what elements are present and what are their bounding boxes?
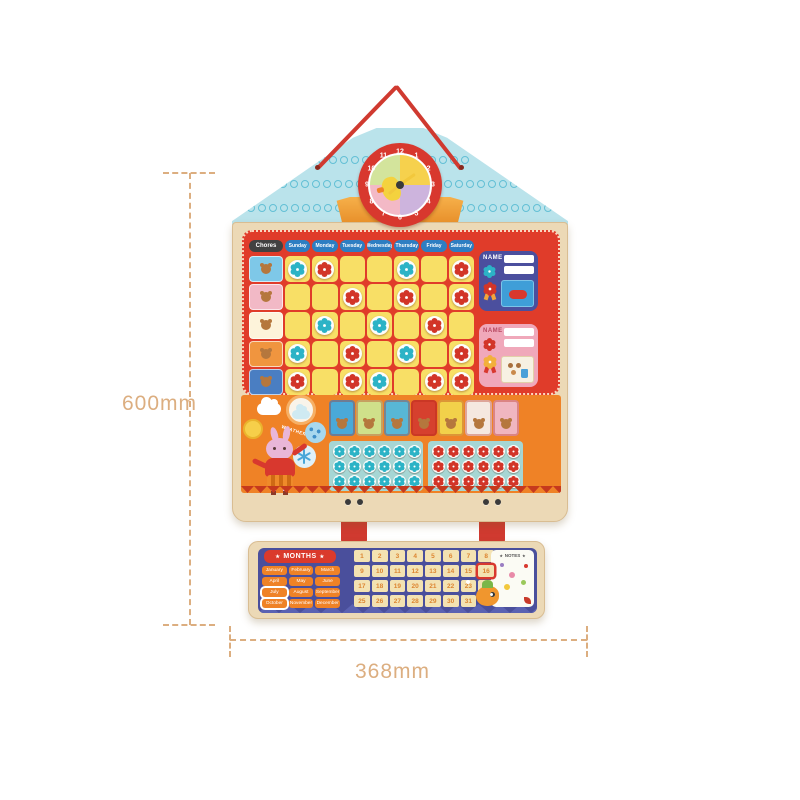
width-dimension-cap-left [229, 626, 231, 657]
screw-icon [357, 499, 363, 505]
flower-magnet-red [452, 372, 471, 391]
height-dimension-cap-top [163, 172, 215, 174]
flower-token-blue [333, 460, 346, 473]
doodle-ring [280, 204, 288, 212]
chart-cell [312, 369, 337, 395]
chart-cell [449, 284, 474, 310]
bear-illustration [261, 349, 271, 359]
bear-illustration [501, 419, 511, 429]
date-27: 27 [390, 595, 406, 607]
date-13: 13 [425, 565, 441, 577]
activity-section: WEATHER [241, 395, 561, 493]
flower-token-blue [393, 445, 406, 458]
name-field [504, 328, 534, 336]
day-badge-tuesday: Tuesday [340, 240, 365, 252]
date-10: 10 [372, 565, 388, 577]
bear-illustration [261, 292, 271, 302]
bear-illustration [337, 419, 347, 429]
fish-character [476, 586, 499, 606]
chart-cell [285, 256, 310, 282]
doodle-ring [488, 180, 496, 188]
activity-tile-wash-hands [493, 400, 519, 436]
doodle-ring [555, 204, 563, 212]
flower-magnet-red [425, 316, 444, 335]
star-icon: ★ [275, 554, 280, 560]
bear-illustration [261, 320, 271, 330]
main-board: Chores SundayMondayTuesdayWednesdayThurs… [232, 222, 568, 522]
name-field [504, 255, 534, 263]
bear-illustration [261, 377, 271, 387]
clock-number-11: 11 [380, 153, 387, 160]
chart-cell [367, 284, 392, 310]
width-dimension-cap-right [586, 626, 588, 657]
chore-icons-column [249, 256, 283, 395]
chart-cell [394, 284, 419, 310]
chart-cell [285, 312, 310, 338]
doodle-ring [301, 180, 309, 188]
chart-cell [312, 256, 337, 282]
chore-tile-play-time [249, 312, 283, 338]
date-15: 15 [461, 565, 477, 577]
bunny-character [243, 431, 327, 493]
date-1: 1 [354, 550, 370, 562]
chart-cell [449, 256, 474, 282]
chart-cell [367, 256, 392, 282]
chart-cell [285, 369, 310, 395]
doodle-ring [455, 180, 463, 188]
flower-token-red [492, 445, 505, 458]
doodle-ring [334, 180, 342, 188]
date-20: 20 [407, 580, 423, 592]
activity-tiles-row [329, 400, 519, 436]
flower-token-blue [363, 460, 376, 473]
doodle-ring [544, 204, 552, 212]
clock-number-7: 7 [382, 210, 386, 217]
flower-token-blue [333, 445, 346, 458]
months-title: MONTHS [283, 553, 316, 560]
teaching-clock: 121234567891011 [358, 143, 442, 227]
date-6: 6 [443, 550, 459, 562]
chart-cell [394, 369, 419, 395]
date-11: 11 [390, 565, 406, 577]
flower-magnet-red [288, 372, 307, 391]
name-label: NAME [483, 328, 503, 334]
chart-cell [340, 312, 365, 338]
month-april: April [262, 577, 287, 586]
chart-cell [312, 284, 337, 310]
balloon-dot [524, 564, 528, 568]
calendar-board: ★ MONTHS ★ JanuaryFebruaryMarchAprilMayJ… [248, 541, 545, 619]
star-grid [285, 256, 474, 395]
flower-magnet-red [452, 344, 471, 363]
flower-magnet-blue [397, 344, 416, 363]
balloon-dot [521, 580, 526, 585]
flower-magnet-red [452, 288, 471, 307]
cloudy-icon [257, 403, 281, 415]
day-badge-thursday: Thursday [394, 240, 419, 252]
flower-magnet-red [452, 260, 471, 279]
date-14: 14 [443, 565, 459, 577]
zigzag-border [241, 486, 561, 493]
doodle-ring [279, 180, 287, 188]
doodle-ring [461, 156, 469, 164]
date-26: 26 [372, 595, 388, 607]
flower-token-red [447, 460, 460, 473]
bear-illustration [364, 419, 374, 429]
activity-tile-sleep [438, 400, 464, 436]
clock-number-5: 5 [415, 210, 419, 217]
chore-tile-wake-up-bear [249, 256, 283, 282]
flower-magnet-blue [370, 316, 389, 335]
flower-token-red [492, 460, 505, 473]
chart-cell [312, 341, 337, 367]
doodle-ring [351, 156, 359, 164]
flower-token-blue [408, 445, 421, 458]
date-9: 9 [354, 565, 370, 577]
doodle-ring [521, 180, 529, 188]
clock-number-12: 12 [396, 149, 404, 156]
reward-card-game-controller [501, 280, 534, 307]
date-3: 3 [390, 550, 406, 562]
flower-token-blue [378, 445, 391, 458]
calendar-panel: ★ MONTHS ★ JanuaryFebruaryMarchAprilMayJ… [258, 548, 537, 613]
flower-magnet-red [343, 288, 362, 307]
doodle-ring [323, 180, 331, 188]
clock-number-6: 6 [398, 215, 402, 222]
doodle-ring [340, 156, 348, 164]
bear-illustration [392, 419, 402, 429]
chore-tile-homework [249, 341, 283, 367]
flower-token-red [507, 460, 520, 473]
doodle-ring [477, 180, 485, 188]
weekly-chart-panel: Chores SundayMondayTuesdayWednesdayThurs… [242, 230, 560, 395]
chart-cell [421, 284, 446, 310]
flower-magnet-red [397, 288, 416, 307]
flower-token-blue [348, 445, 361, 458]
chore-tile-snack-drink [249, 284, 283, 310]
chores-header: Chores [249, 240, 283, 252]
flower-icon [483, 265, 496, 278]
doodle-ring [236, 204, 244, 212]
name-panel-blue: NAME [479, 251, 538, 311]
flower-magnet-blue [370, 372, 389, 391]
doodle-ring [324, 204, 332, 212]
chart-cell [367, 312, 392, 338]
flower-token-red [462, 445, 475, 458]
flower-icon [483, 338, 496, 351]
sparkle-icon [466, 580, 470, 584]
flower-magnet-red [343, 372, 362, 391]
balloon-dot [504, 584, 510, 590]
chart-cell [285, 341, 310, 367]
flower-magnet-red [343, 344, 362, 363]
name-panel-pink: NAME [479, 324, 538, 387]
award-ribbon-icon [483, 282, 497, 296]
chart-cell [340, 284, 365, 310]
chart-cell [421, 341, 446, 367]
token-tray-red [428, 441, 523, 491]
bear-illustration [446, 419, 456, 429]
activity-tile-football [411, 400, 437, 436]
flower-token-red [507, 445, 520, 458]
chart-cell [421, 312, 446, 338]
date-12: 12 [407, 565, 423, 577]
clock-number-9: 9 [365, 182, 369, 189]
date-30: 30 [443, 595, 459, 607]
flower-magnet-red [315, 260, 334, 279]
date-25: 25 [354, 595, 370, 607]
date-16: 16 [478, 565, 494, 577]
date-2: 2 [372, 550, 388, 562]
doodle-ring [302, 204, 310, 212]
date-21: 21 [425, 580, 441, 592]
flower-token-red [447, 445, 460, 458]
chart-cell [394, 256, 419, 282]
clock-number-8: 8 [369, 198, 373, 205]
month-july: July [262, 588, 287, 597]
flower-token-blue [363, 445, 376, 458]
doodle-ring [312, 180, 320, 188]
date-29: 29 [425, 595, 441, 607]
date-18: 18 [372, 580, 388, 592]
doodle-ring [257, 180, 265, 188]
activity-tile-bath [465, 400, 491, 436]
notes-header: ★ NOTES ★ [491, 553, 534, 558]
day-badge-saturday: Saturday [449, 240, 474, 252]
doodle-ring [291, 204, 299, 212]
doodle-ring [439, 156, 447, 164]
name-field [504, 339, 534, 347]
doodle-ring [444, 180, 452, 188]
token-tray-blue [329, 441, 423, 491]
flower-magnet-blue [288, 344, 307, 363]
flower-token-red [477, 460, 490, 473]
flower-token-blue [408, 460, 421, 473]
doodle-ring [268, 180, 276, 188]
clock-number-1: 1 [415, 153, 419, 160]
date-19: 19 [390, 580, 406, 592]
product-photo-magnetic-reward-chart: 600mm 368mm 121234567891011 Chores Sunda… [0, 0, 800, 800]
flower-token-blue [393, 460, 406, 473]
activity-tile-toilet [329, 400, 355, 436]
clock-number-10: 10 [368, 165, 376, 172]
activity-tile-reading [356, 400, 382, 436]
chart-cell [449, 369, 474, 395]
name-label: NAME [483, 255, 503, 261]
flower-token-red [432, 445, 445, 458]
doodle-ring [500, 204, 508, 212]
months-header: ★ MONTHS ★ [264, 550, 336, 563]
doodle-ring [533, 204, 541, 212]
star-icon: ★ [500, 554, 503, 558]
name-field [504, 266, 534, 274]
flower-token-blue [378, 460, 391, 473]
screw-icon [483, 499, 489, 505]
width-dimension-label: 368mm [355, 660, 430, 684]
clock-pivot [396, 181, 404, 189]
day-badge-sunday: Sunday [285, 240, 310, 252]
doodle-ring [246, 180, 254, 188]
doodle-ring [290, 180, 298, 188]
chore-tile-bed-time [249, 369, 283, 395]
months-grid: JanuaryFebruaryMarchAprilMayJuneJulyAugu… [262, 566, 340, 608]
chart-cell [449, 341, 474, 367]
day-badge-friday: Friday [421, 240, 446, 252]
month-september: September [315, 588, 340, 597]
dates-grid: 1234567891011121314151617181920212223242… [354, 550, 494, 607]
award-ribbon-icon [483, 355, 497, 369]
screw-icon [345, 499, 351, 505]
cloud-icon [292, 410, 310, 419]
doodle-ring [532, 180, 540, 188]
month-november: November [289, 599, 314, 608]
doodle-ring [522, 204, 530, 212]
doodle-ring [269, 204, 277, 212]
date-17: 17 [354, 580, 370, 592]
chart-cell [340, 256, 365, 282]
notes-label: NOTES [505, 553, 521, 558]
flower-magnet-blue [288, 260, 307, 279]
date-7: 7 [461, 550, 477, 562]
chart-cell [394, 312, 419, 338]
doodle-ring [489, 204, 497, 212]
balloon-dot [509, 572, 515, 578]
chart-cell [367, 341, 392, 367]
month-february: February [289, 566, 314, 575]
doodle-ring [511, 204, 519, 212]
doodle-ring [466, 180, 474, 188]
month-june: June [315, 577, 340, 586]
doodle-ring [247, 204, 255, 212]
today-weather-slot [286, 395, 316, 425]
bear-illustration [261, 264, 271, 274]
month-august: August [289, 588, 314, 597]
chart-cell [449, 312, 474, 338]
bear-illustration [419, 419, 429, 429]
height-dimension-label: 600mm [122, 392, 197, 416]
flower-token-blue [348, 460, 361, 473]
doodle-ring [313, 204, 321, 212]
chart-cell [394, 341, 419, 367]
cord-hole [459, 165, 464, 170]
flower-token-red [462, 460, 475, 473]
doodle-ring [499, 180, 507, 188]
chart-cell [340, 369, 365, 395]
date-28: 28 [407, 595, 423, 607]
month-october: October [262, 599, 287, 608]
day-header-row: SundayMondayTuesdayWednesdayThursdayFrid… [285, 240, 474, 252]
date-31: 31 [461, 595, 477, 607]
doodle-ring [478, 204, 486, 212]
clock-number-2: 2 [427, 165, 431, 172]
month-may: May [289, 577, 314, 586]
flower-magnet-red [425, 372, 444, 391]
date-22: 22 [443, 580, 459, 592]
flower-token-red [432, 460, 445, 473]
bear-illustration [474, 419, 484, 429]
doodle-ring [258, 204, 266, 212]
flower-magnet-blue [315, 316, 334, 335]
star-icon: ★ [320, 554, 325, 560]
activity-tile-brush-teeth [384, 400, 410, 436]
screw-icon [495, 499, 501, 505]
star-icon: ★ [522, 554, 525, 558]
date-4: 4 [407, 550, 423, 562]
reward-card-snacks [501, 356, 534, 383]
day-badge-monday: Monday [312, 240, 337, 252]
chart-cell [421, 369, 446, 395]
width-dimension-line [230, 639, 587, 641]
clock-number-4: 4 [427, 198, 431, 205]
doodle-ring [345, 180, 353, 188]
cord-hole [315, 165, 320, 170]
flower-magnet-blue [397, 260, 416, 279]
month-january: January [262, 566, 287, 575]
month-december: December [315, 599, 340, 608]
chart-cell [367, 369, 392, 395]
doodle-ring [510, 180, 518, 188]
month-march: March [315, 566, 340, 575]
doodle-ring [467, 204, 475, 212]
chart-cell [285, 284, 310, 310]
flower-token-red [477, 445, 490, 458]
height-dimension-cap-bottom [163, 624, 215, 626]
leaf-icon [524, 597, 531, 604]
chart-cell [340, 341, 365, 367]
date-5: 5 [425, 550, 441, 562]
chart-cell [312, 312, 337, 338]
clock-number-3: 3 [431, 182, 435, 189]
chart-cell [421, 256, 446, 282]
balloon-dot [500, 563, 504, 567]
day-badge-wednesday: Wednesday [367, 240, 392, 252]
